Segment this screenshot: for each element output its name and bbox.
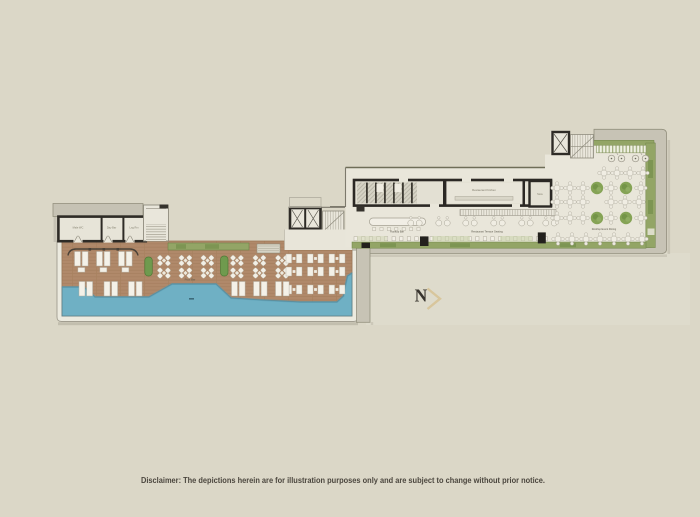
- svg-text:Rooftop Event Dining: Rooftop Event Dining: [592, 227, 617, 231]
- svg-text:Pool Bar: Pool Bar: [185, 277, 196, 281]
- svg-text:N: N: [415, 286, 428, 306]
- svg-text:Disclaimer: The depictions her: Disclaimer: The depictions herein are fo…: [141, 476, 545, 485]
- svg-text:Rooftop Bar: Rooftop Bar: [390, 229, 404, 233]
- svg-text:Restaurant Kitchen: Restaurant Kitchen: [472, 188, 496, 192]
- svg-text:Day Bar: Day Bar: [107, 226, 117, 230]
- svg-text:Lng Rm: Lng Rm: [129, 226, 138, 230]
- svg-text:Male WC: Male WC: [73, 226, 84, 230]
- svg-text:Restaurant Terrace Seating: Restaurant Terrace Seating: [471, 229, 503, 233]
- svg-text:Store: Store: [537, 193, 543, 196]
